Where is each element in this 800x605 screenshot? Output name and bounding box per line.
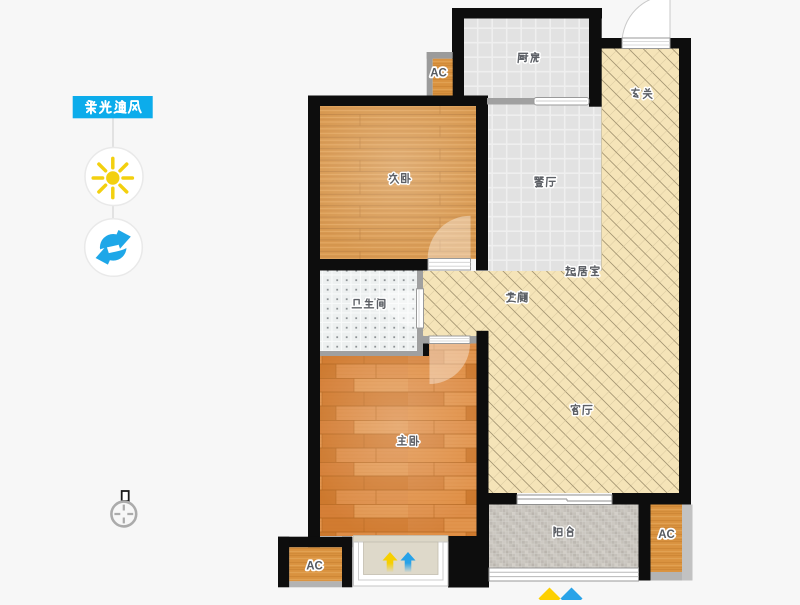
svg-text:AC: AC (658, 529, 675, 541)
svg-text:AC: AC (430, 68, 447, 80)
svg-text:AC: AC (306, 561, 323, 573)
